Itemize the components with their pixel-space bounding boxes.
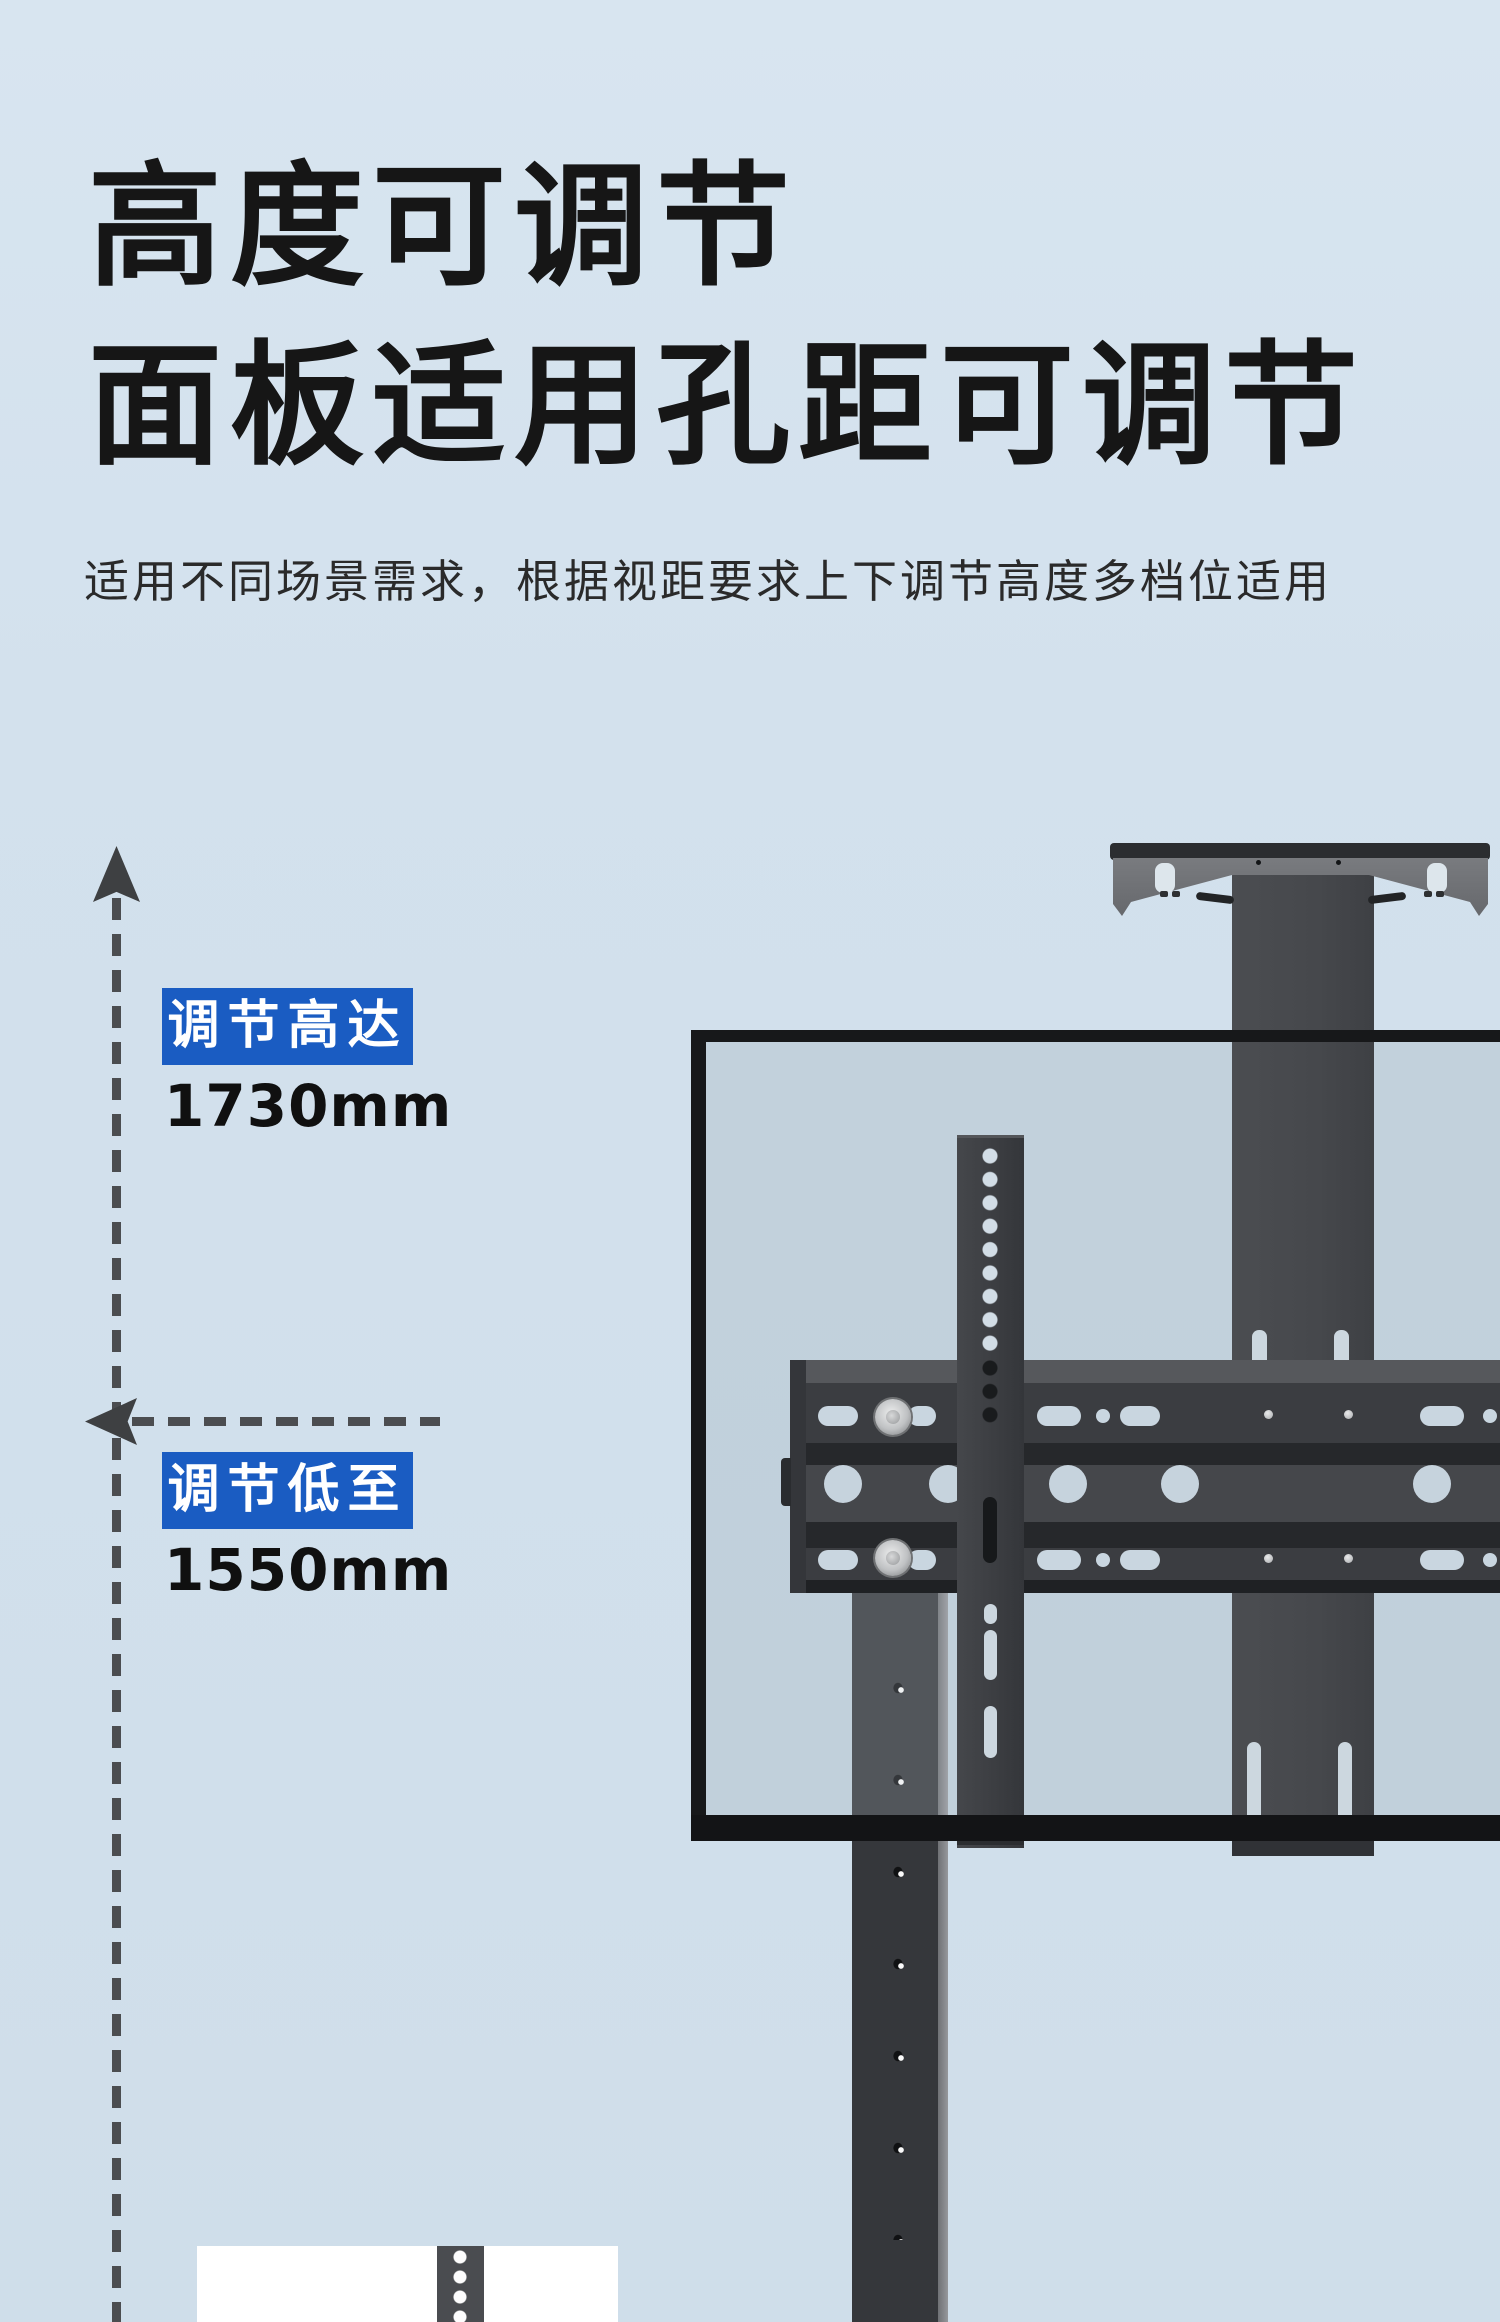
bracket-wing-mark [1160,891,1168,897]
rail-slot [1120,1550,1160,1570]
preview-vesa-strip-holes [447,2247,473,2322]
rail-pin [1344,1410,1353,1419]
rail-hole [1096,1553,1110,1567]
bracket-curved-slot [1196,892,1235,905]
rail-hole [1483,1409,1497,1423]
tv-panel-border-bottom [691,1815,1500,1841]
rail-screw [875,1540,911,1576]
rail-big-hole [1161,1465,1199,1503]
bracket-wing-slot [1155,863,1175,893]
lower-pole-haze [852,1593,948,1840]
tv-panel-border-top [691,1030,1500,1042]
vesa-strip-holes [974,1144,1006,1354]
bracket-dot [1256,860,1261,865]
top-mount-bracket-plate [1110,843,1490,860]
badge-max-height: 调节高达 [162,988,413,1065]
rail-pin [1264,1554,1273,1563]
rail-big-hole [824,1465,862,1503]
rail-big-hole [1049,1465,1087,1503]
subtitle: 适用不同场景需求，根据视距要求上下调节高度多档位适用 [84,545,1332,610]
main-title-line1: 高度可调节 [88,138,1366,317]
bracket-wing-slot [1427,863,1447,893]
rail-slot [908,1406,936,1426]
rail-slot [1420,1550,1464,1570]
rail-groove [790,1443,1500,1465]
rail-slot [1420,1406,1464,1426]
main-title-line2: 面板适用孔距可调节 [88,317,1366,496]
dashed-line-vertical [112,898,121,2322]
rail-hole [1096,1409,1110,1423]
rail-slot [908,1550,936,1570]
next-section-preview [197,2246,618,2322]
rail-pin [1344,1554,1353,1563]
rail-slot [1037,1550,1081,1570]
bracket-wing-mark [1436,891,1444,897]
rail-middle [790,1465,1500,1522]
arrow-left-icon [85,1398,137,1445]
rail-slot [818,1550,858,1570]
arrow-up-icon [93,846,140,902]
page-background: 高度可调节 面板适用孔距可调节 适用不同场景需求，根据视距要求上下调节高度多档位… [0,0,1500,2322]
rail-pin [1264,1410,1273,1419]
vesa-strip-slot [984,1604,997,1624]
main-title: 高度可调节 面板适用孔距可调节 [88,138,1366,496]
dashed-line-horizontal [132,1417,440,1426]
vesa-strip-slot [984,1630,997,1680]
bracket-dot [1336,860,1341,865]
rail-screw [875,1399,911,1435]
max-height-value: 1730mm [164,1072,452,1140]
rail-slot [1037,1406,1081,1426]
rail-left-tab [781,1458,791,1506]
tv-panel-border-left [691,1030,706,1840]
upper-column-flange [1232,1840,1374,1856]
rail-bottom-lip [790,1580,1500,1593]
vesa-strip-slot [983,1497,997,1563]
rail-slot [1120,1406,1160,1426]
vesa-strip-slot [984,1706,997,1758]
rail-top-bevel [790,1360,1500,1383]
vesa-strip-holes-dark [974,1356,1006,1426]
rail-hole [1483,1553,1497,1567]
min-height-value: 1550mm [164,1536,452,1604]
bracket-wing-mark [1424,891,1432,897]
rail-slot [818,1406,858,1426]
rail-left-endcap [790,1360,806,1593]
rail-big-hole [1413,1465,1451,1503]
badge-min-height: 调节低至 [162,1452,413,1529]
bracket-wing-mark [1172,891,1180,897]
